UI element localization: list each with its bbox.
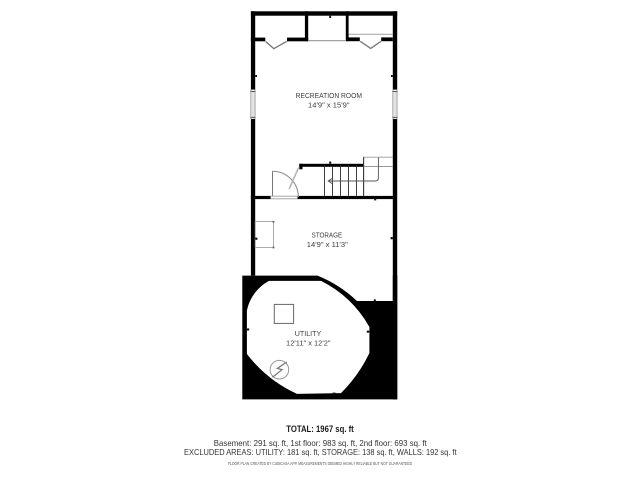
svg-text:FLOOR PLAN CREATED BY CUBICASA: FLOOR PLAN CREATED BY CUBICASA APP. MEAS… (228, 461, 412, 466)
svg-text:UTILITY: UTILITY (295, 329, 322, 338)
svg-text:EXCLUDED AREAS: UTILITY: 181 s: EXCLUDED AREAS: UTILITY: 181 sq. ft, STO… (184, 448, 457, 457)
svg-text:12'11" x 12'2": 12'11" x 12'2" (286, 339, 331, 348)
svg-text:14'9" x 11'3": 14'9" x 11'3" (307, 240, 348, 249)
svg-text:RECREATION ROOM: RECREATION ROOM (296, 91, 362, 100)
svg-text:TOTAL: 1967 sq. ft: TOTAL: 1967 sq. ft (286, 424, 354, 434)
svg-text:Basement: 291 sq. ft, 1st floo: Basement: 291 sq. ft, 1st floor: 983 sq.… (214, 439, 428, 448)
svg-text:STORAGE: STORAGE (312, 231, 343, 240)
svg-text:14'9" x 15'9": 14'9" x 15'9" (308, 101, 350, 110)
